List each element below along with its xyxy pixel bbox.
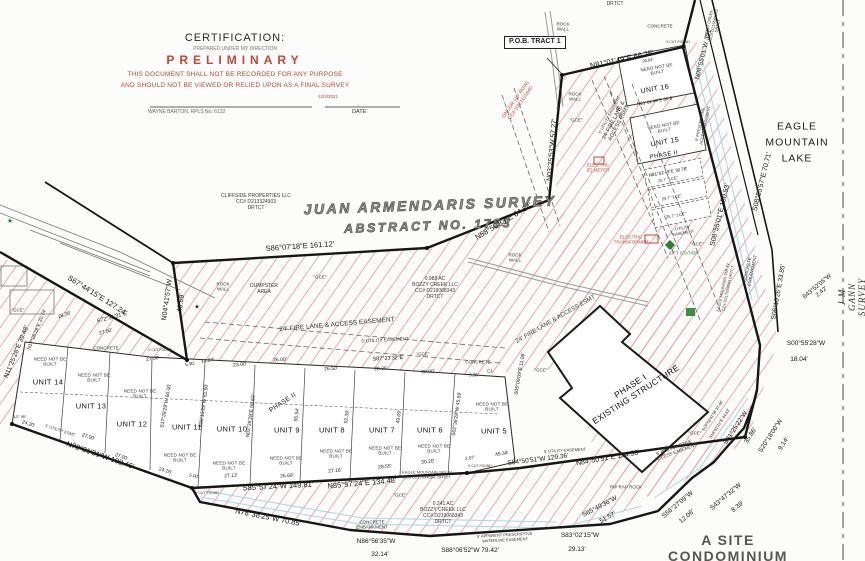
monument-label: 1/2" IRF	[14, 415, 27, 419]
bearing-label: N11°25'28"E 39.48'	[3, 325, 31, 380]
need-not-be-built-label: NEED NOT BE BUILT	[320, 449, 353, 460]
gce-label: "GCE"	[535, 367, 548, 372]
dimension-label: 5.00'	[189, 473, 199, 480]
unit-label: UNIT 10	[217, 426, 248, 435]
distance-label: 35.86'	[743, 427, 759, 446]
bearing-label: S86°07'18"E 161.12'	[265, 240, 334, 254]
utility-easement-label: 5' UTILITY EASEMENT	[361, 336, 409, 344]
owner-label: BOZZY CREEK CC# D219068343 DRTCT	[704, 8, 725, 42]
prescriptive-easement-label: 8' PRESCRIPTIVE ACCESS EASEMENT	[652, 437, 697, 462]
prescriptive-easement-label: 8' PRESCRIPTIVE ACCESS EASEMENT	[694, 105, 711, 146]
unit-label: UNIT 5	[481, 428, 507, 437]
dimension-label: 27.00'	[81, 433, 96, 443]
bearing-label: S84°50'51"W 129.36'	[507, 452, 569, 467]
electric-transformer-label: ELECTRIC TRANSFORMER	[614, 235, 649, 246]
owner-label: EAGLE MOUNTAIN SMI JV CC# D217094694, DR…	[402, 470, 452, 479]
gce-label: "GCE"	[12, 307, 25, 312]
distance-label: 12.06'	[678, 508, 696, 525]
star-symbol: ★	[194, 304, 199, 311]
bearing-label: S43°52'05"W 2.42'	[798, 270, 842, 310]
owner-label: CLIFFSIDE PROPERTIES LLC CC# D213324903 …	[221, 194, 291, 212]
dimension-label: 27.00'	[99, 328, 114, 337]
bearing-label: S02°36'28"W 45.59'	[452, 392, 464, 437]
bearing-label: S85°57'24"W 149.81'	[242, 481, 313, 494]
need-not-be-built-label: NEED NOT BE BUILT	[640, 62, 674, 78]
dimension-label: 28.36'	[58, 311, 73, 321]
concrete-embankment-label: CONCRETE EMBANKMENT	[356, 520, 388, 531]
dimension-label: 23.00'	[233, 362, 247, 369]
bearing-label: N78°38'25"W 70.85'	[234, 507, 301, 528]
distance-label: 18.04'	[790, 356, 808, 364]
bearing-label: S06°10'26"E 33.85'	[770, 264, 787, 320]
dimension-label: 30.84'	[642, 58, 653, 65]
lce-label: 25.7' "LCE"	[666, 212, 687, 220]
distance-label: 8.39'	[730, 500, 746, 515]
dimension-label: 24.20'	[21, 420, 36, 430]
dimension-label: 56.54'	[294, 408, 302, 422]
need-not-be-built-label: NEED NOT BE BUILT	[164, 453, 197, 464]
dimension-label: 2.07'	[465, 455, 475, 462]
rock-wall-label: ROCK WALL	[556, 22, 569, 33]
unit-label: UNIT 14	[33, 379, 64, 388]
dimension-label: 14.24'	[201, 358, 215, 366]
bearing-label: N86°56'35"W	[357, 538, 396, 546]
electric-meter-label: ELECTRIC (E) METER	[587, 163, 610, 174]
rock-wall-label: ROCK WALL	[508, 253, 521, 264]
bearing-label: N85°57'24"E 134.48'	[327, 477, 397, 492]
rock-wall-label: ROCK WALL	[216, 282, 229, 293]
bearing-label: N03°25'53"W 57.27'	[546, 119, 560, 182]
survey-plat-page: CERTIFICATION: PREPARED UNDER MY DIRECTI…	[0, 0, 865, 561]
dimension-label: 30.20'	[421, 459, 435, 466]
dimension-label: 27.00'	[146, 356, 160, 364]
oncor-row-label: ONCOR (10' ROW) CC# D221121640	[502, 81, 537, 123]
concrete-embankment-label: CONCRETE EMBANKMENT	[742, 253, 759, 286]
need-not-be-built-label: NEED NOT BE BUILT	[418, 444, 451, 455]
dimension-label: 26.00'	[273, 358, 287, 365]
concrete-label: CONCRETE	[465, 359, 490, 364]
need-not-be-built-label: NEED NOT BE BUILT	[213, 461, 246, 472]
bearing-label: S88°06'52"W 79.42'	[441, 547, 499, 555]
unit-label: UNIT 15	[650, 136, 680, 149]
bearing-label: S08°55'57"E 70.71'	[752, 152, 775, 212]
gce-label: "GCE"	[570, 117, 583, 122]
need-not-be-built-label: NEED NOT BE BUILT	[34, 357, 67, 368]
bearing-label: N02°36'28"E 58.63'	[246, 394, 258, 438]
gce-label: "GCE"	[417, 351, 430, 356]
rip-rap-label: RIP RAP ROCK	[610, 484, 642, 489]
bearing-label: N81°01'49"E 30.8'	[637, 95, 674, 107]
distance-label: 29.13'	[568, 546, 586, 554]
distance-label: 9.14'	[777, 436, 791, 452]
unit-label: UNIT 7	[369, 427, 395, 436]
phase1-structure-label: PHASE I EXISTING STRUCTURE	[585, 354, 681, 426]
need-not-be-built-label: NEED NOT BE BUILT	[647, 120, 681, 136]
gce-label: "GCE"	[314, 274, 327, 279]
owner-label: DRTCT	[607, 2, 624, 8]
bearing-label: S00°55'28"W	[787, 340, 825, 348]
bearing-label: S83°02'15"W	[561, 532, 599, 540]
need-not-be-built-label: NEED NOT BE BUILT	[476, 402, 509, 413]
bearing-label: N58°50'33"E 64.54'	[474, 202, 534, 243]
bearing-label: S67°44'15"E 127.24'	[66, 274, 129, 318]
need-not-be-built-label: NEED NOT BE BUILT	[369, 446, 402, 457]
dimension-label: 28.36'	[374, 367, 388, 374]
utility-easement-label: UTILITY EASEMENT	[671, 224, 694, 237]
concrete-label: CONCRETE	[93, 345, 118, 350]
distance-label: 48.69'	[177, 293, 188, 313]
dimension-label: 28.55'	[378, 464, 392, 471]
rock-wall-label: ROCK WALL	[568, 92, 581, 103]
distance-label: 51.57'	[598, 511, 617, 526]
dimension-label: 27.13'	[224, 474, 238, 481]
dimension-label: 49.09'	[396, 410, 404, 424]
owner-label: EAGLE MOUNTAIN SMI JV CC# D217094694 DRT…	[716, 263, 736, 313]
monument-label: X CUT FOUND	[666, 40, 690, 44]
lift-station-label: LIFT STATION	[669, 250, 698, 255]
unit-label: UNIT 12	[117, 421, 148, 430]
annotation-layer: S67°44'15"E 127.24'N04°41'57"W48.69'S86°…	[0, 0, 865, 561]
need-not-be-built-label: NEED NOT BE BUILT	[124, 389, 157, 400]
bearing-label: S08°55'01"E 150.53'	[709, 183, 732, 247]
dimension-label: 5.90'	[185, 361, 195, 368]
need-not-be-built-label: NEED NOT BE BUILT	[78, 373, 111, 384]
phase-label: PHASE II	[649, 150, 678, 162]
gce-label: "GCE"	[394, 492, 407, 497]
dimension-label: 24.26'	[158, 467, 173, 476]
owner-label: 0.241 AC BOZZY CREEK LLC CC# D219068343 …	[420, 502, 466, 526]
bearing-label: N17°28'29"E 20.74'	[27, 309, 49, 351]
dimension-label: 26.50'	[324, 367, 338, 374]
curve-label: C1	[487, 368, 493, 373]
fire-lane-easement-label: 24' FIRE LANE & ACCESS EASEMENT	[279, 316, 395, 334]
dimension-label: 27.16'	[328, 469, 342, 476]
unit-label: UNIT 9	[274, 427, 300, 436]
lce-label: 25.7' "LCE"	[662, 194, 683, 202]
monument-label: X CUT FOUND	[148, 348, 172, 352]
dimension-label: 45.34'	[495, 451, 509, 459]
bearing-label: S72°31'31"E	[96, 311, 128, 325]
waterline-easement-label: 5' APPARENT PRESCRIPTIVE WATERLINE EASEM…	[477, 532, 533, 544]
dimension-label: 30.00'	[421, 370, 435, 377]
monument-label: X CUT FOUND	[195, 491, 219, 495]
tree-symbol: ★	[7, 218, 13, 226]
dimension-label: 26.68'	[280, 474, 294, 481]
bearing-label: S87°23'32"E	[372, 355, 403, 363]
monument-label: X CUT FOUND	[468, 464, 492, 468]
concrete-label: CONCRETE	[647, 23, 672, 28]
gce-label: "GCE"	[691, 241, 704, 246]
dimension-label: 5.35'	[469, 372, 479, 378]
unit-label: UNIT 13	[76, 403, 107, 412]
distance-label: 32.14'	[371, 551, 389, 559]
gce-label: "GCE"	[689, 430, 702, 435]
owner-label: 0.988 AC BOZZY CREEK LLC CC# D219068343 …	[412, 277, 458, 301]
easement-label: 5' UTILITY ESMT	[44, 424, 75, 438]
bearing-label: S05°09'09"E 11.06'	[514, 353, 527, 396]
unit-label: UNIT 11	[172, 424, 202, 433]
unit-label: UNIT 6	[417, 427, 443, 436]
unit-label: UNIT 16	[640, 83, 670, 96]
need-not-be-built-label: NEED NOT BE BUILT	[270, 456, 303, 467]
lce-label: 25.7' "LCE"	[658, 176, 679, 184]
fire-lane-easement-label: 24' FIRE LANE & ACCESS ESMT	[515, 294, 597, 345]
dumpster-area-label: DUMPSTER AREA	[250, 284, 278, 296]
dimension-label: 52.39'	[344, 410, 352, 424]
unit-label: UNIT 8	[319, 427, 345, 436]
bearing-label: N04°41'57"W	[161, 279, 175, 321]
